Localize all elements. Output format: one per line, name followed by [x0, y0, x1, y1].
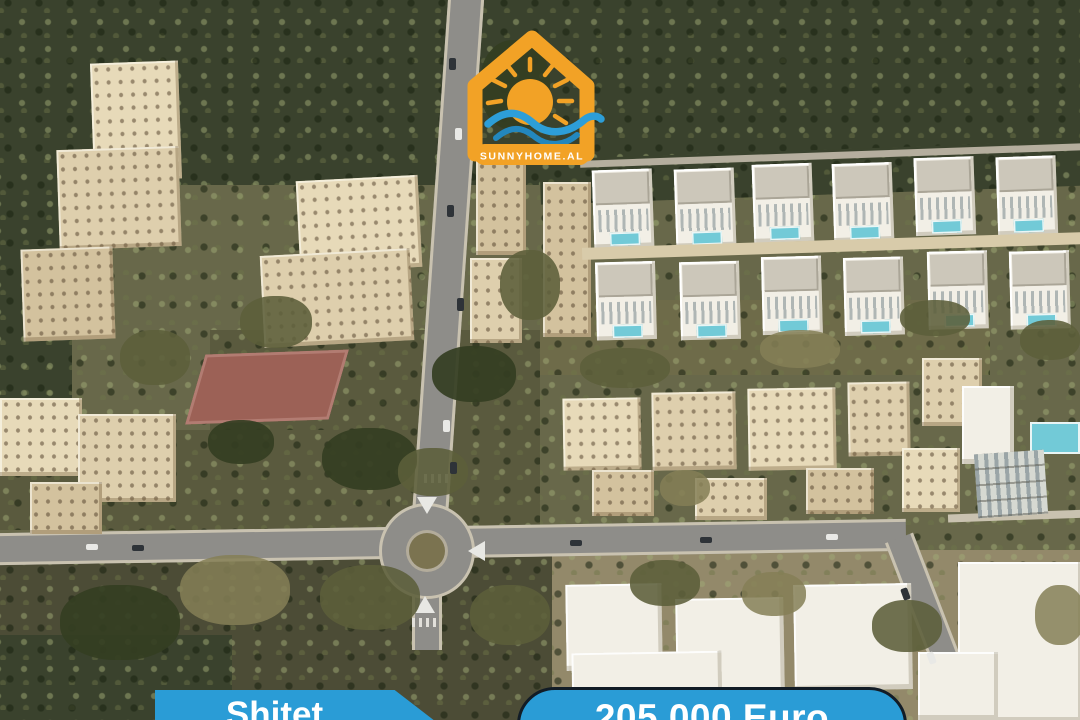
tree-grove	[742, 572, 806, 616]
tree-grove	[398, 448, 468, 496]
building-block	[562, 397, 641, 470]
pool	[1014, 219, 1044, 233]
tree-grove	[1035, 585, 1080, 645]
car	[700, 537, 712, 543]
yield-marking	[417, 497, 437, 514]
villa	[832, 162, 895, 242]
villa-glass	[1015, 290, 1066, 313]
crosswalk	[412, 618, 436, 627]
villa-roof	[598, 264, 653, 297]
building-block	[20, 246, 115, 341]
villa-glass	[1002, 195, 1053, 219]
car	[447, 205, 454, 217]
pool	[861, 320, 891, 334]
villa-glass	[758, 203, 809, 227]
sports-court	[185, 350, 349, 425]
villa-glass	[849, 297, 900, 320]
villa-roof	[999, 158, 1054, 192]
status-banner: Shitet	[155, 690, 442, 720]
villa	[1009, 250, 1071, 330]
villa-glass	[598, 209, 649, 233]
building-block	[902, 448, 960, 512]
building-block	[651, 391, 736, 470]
tree-grove	[208, 420, 274, 464]
villa-roof	[917, 159, 972, 193]
tree-grove	[872, 600, 942, 652]
villa-roof	[677, 171, 732, 205]
tree-grove	[900, 300, 970, 336]
villa-glass	[838, 202, 889, 226]
tree-grove	[500, 250, 560, 320]
price-banner-label: 205.000 Euro	[595, 697, 829, 720]
real-estate-ad: SUNNYHOME.AL Shitet 205.000 Euro	[0, 0, 1080, 720]
pool	[610, 232, 640, 246]
yield-marking	[468, 541, 485, 561]
tree-grove	[432, 346, 516, 402]
villa-roof	[846, 260, 901, 293]
tree-grove	[240, 296, 312, 348]
building-block	[0, 398, 82, 476]
pool	[850, 225, 880, 239]
villa	[843, 256, 905, 336]
building-block	[806, 468, 874, 514]
tree-grove	[320, 565, 420, 630]
car	[132, 545, 144, 551]
villa-glass	[767, 296, 818, 319]
villa	[595, 261, 657, 341]
pool	[770, 226, 800, 240]
villa-glass	[685, 301, 736, 324]
building-block	[30, 482, 102, 534]
villa-roof	[930, 253, 985, 286]
villa-row	[595, 244, 1080, 355]
villa-roof	[755, 166, 810, 200]
car	[826, 534, 838, 540]
pool	[932, 220, 962, 234]
tree-grove	[630, 560, 700, 606]
tree-grove	[60, 585, 180, 660]
tree-grove	[180, 555, 290, 625]
car	[443, 420, 450, 432]
car	[86, 544, 98, 550]
car	[457, 298, 464, 311]
pool	[613, 324, 643, 338]
building-block	[592, 470, 654, 516]
car	[449, 58, 456, 70]
tree-grove	[580, 348, 670, 388]
villa	[592, 168, 655, 248]
villa-glass	[601, 301, 652, 324]
villa	[913, 156, 976, 236]
villa-roof	[682, 264, 737, 297]
tree-grove	[1020, 320, 1080, 360]
villa-glass	[920, 196, 971, 220]
pool	[697, 324, 727, 338]
villa	[674, 168, 737, 248]
villa	[752, 163, 815, 243]
roundabout-island	[409, 533, 445, 569]
car	[570, 540, 582, 546]
status-banner-label: Shitet	[226, 695, 371, 720]
villa-roof	[764, 259, 819, 292]
tree-grove	[660, 470, 710, 506]
villa-glass	[680, 208, 731, 232]
building-block	[974, 450, 1048, 519]
sunnyhome-logo: SUNNYHOME.AL	[458, 26, 612, 178]
villa	[995, 155, 1058, 235]
brand-name: SUNNYHOME.AL	[480, 151, 584, 163]
villa	[679, 261, 741, 341]
price-banner: 205.000 Euro	[517, 687, 907, 720]
building-block	[847, 381, 910, 456]
car	[450, 462, 457, 474]
tree-grove	[120, 330, 190, 385]
building-block	[747, 387, 836, 471]
building-block	[56, 146, 181, 250]
tree-grove	[760, 330, 840, 368]
villa	[761, 256, 823, 336]
villa-roof	[835, 165, 890, 199]
villa-roof	[1012, 253, 1067, 286]
tree-grove	[470, 585, 550, 645]
